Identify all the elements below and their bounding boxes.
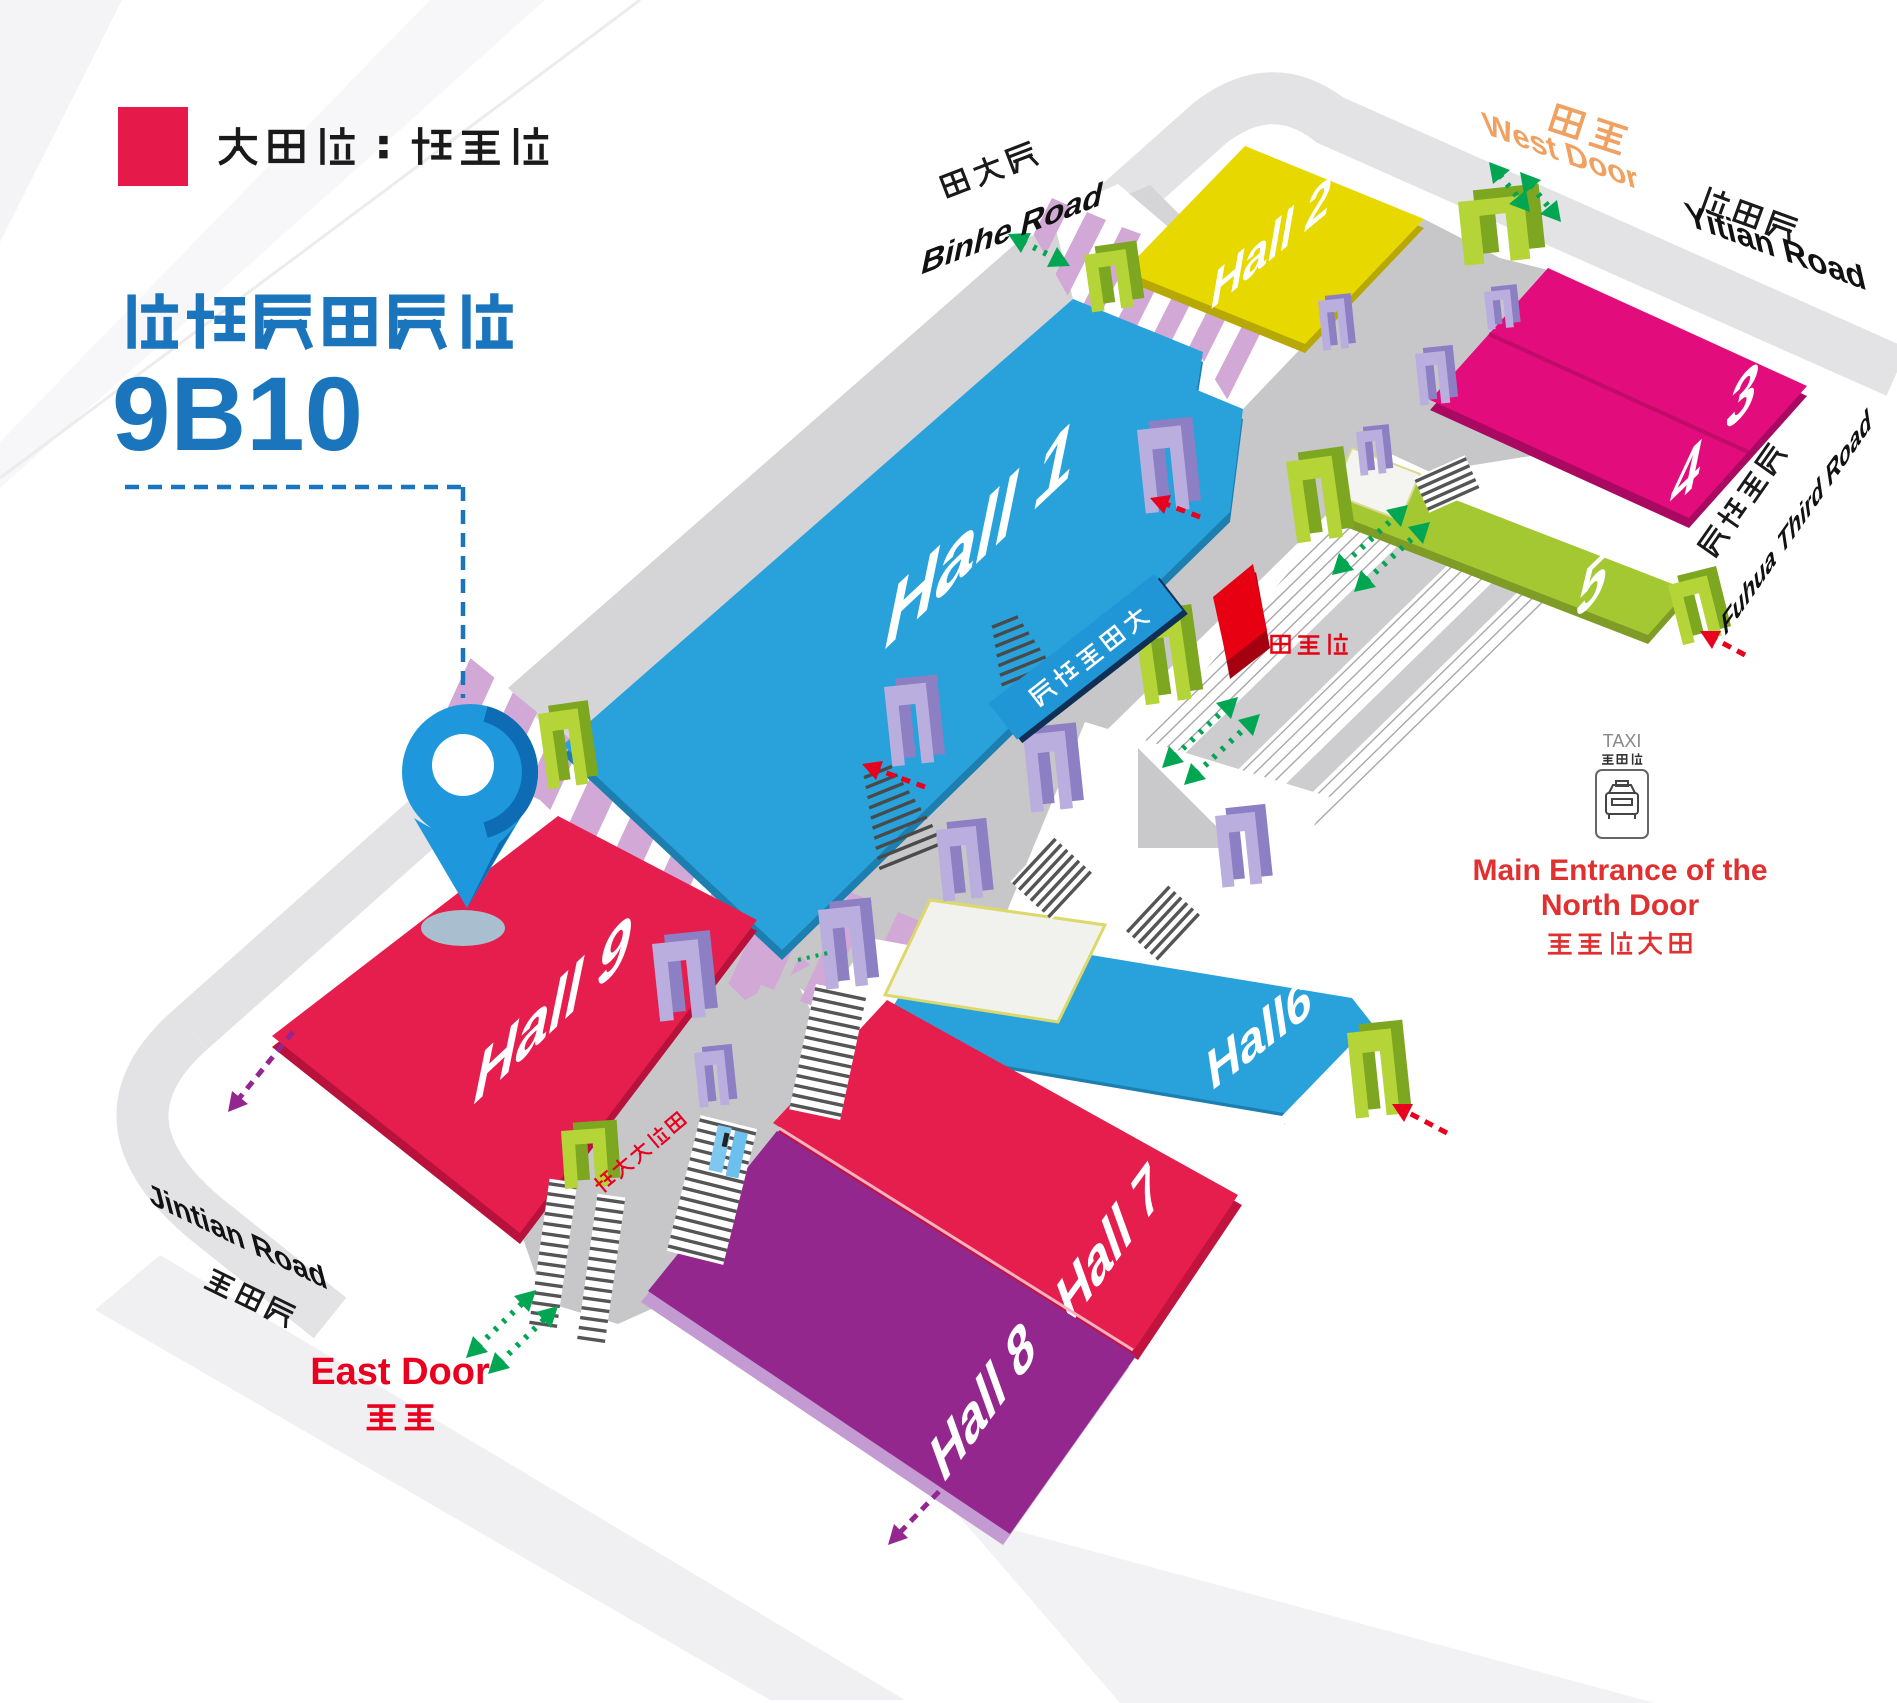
svg-text:North Door: North Door <box>1541 889 1700 922</box>
svg-text:Main Entrance of the: Main Entrance of the <box>1472 854 1767 887</box>
svg-text:9B10: 9B10 <box>112 356 363 473</box>
svg-text:TAXI: TAXI <box>1603 731 1642 751</box>
svg-text:East Door: East Door <box>310 1351 490 1393</box>
